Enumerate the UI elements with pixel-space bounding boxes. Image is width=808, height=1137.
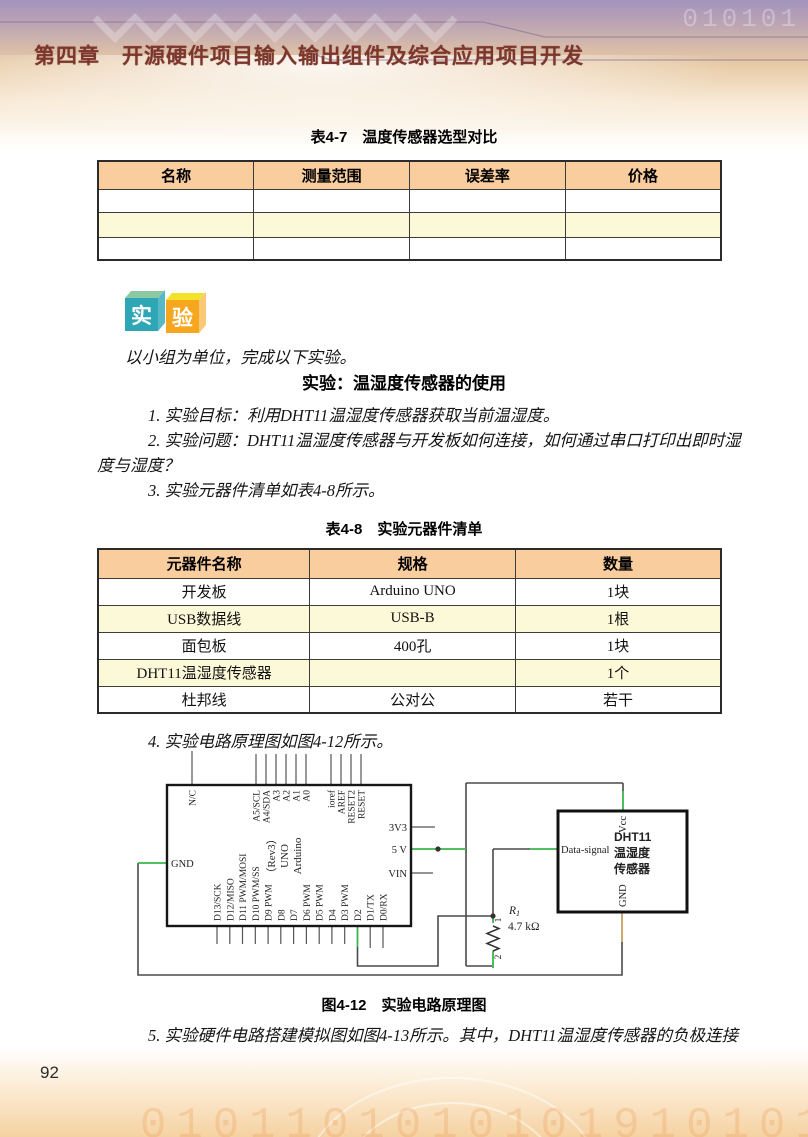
cube-side-face (158, 290, 165, 331)
dht11-gnd-label: GND (618, 884, 629, 907)
table-row: USB数据线 USB-B 1根 (98, 605, 721, 632)
cell (410, 212, 566, 237)
svg-text:A3: A3 (273, 790, 283, 802)
resistor-pin2-label: 2 (494, 954, 504, 959)
junction-dot (435, 846, 440, 851)
resistor-symbol (487, 926, 499, 951)
svg-text:A1: A1 (293, 790, 303, 802)
col-header: 数量 (515, 549, 721, 578)
page-number: 92 (40, 1063, 59, 1083)
svg-text:3V3: 3V3 (389, 823, 407, 834)
circuit-schematic: 1 2 R1 4.7 kΩ N/C A5/SCL A4/SDA A3 A2 A1… (120, 745, 720, 995)
chapter-header: 第四章 开源硬件项目输入输出组件及综合应用项目开发 (34, 40, 584, 70)
cell (565, 189, 721, 212)
table-4-7: 名称 测量范围 误差率 价格 (97, 160, 722, 261)
cell: 若干 (515, 686, 721, 713)
cell (254, 189, 410, 212)
col-header: 规格 (310, 549, 516, 578)
badge-char: 实 (125, 298, 158, 331)
cube-side-face (199, 292, 206, 333)
cell: USB-B (310, 605, 516, 632)
cell: 开发板 (98, 578, 310, 605)
cell: USB数据线 (98, 605, 310, 632)
badge-cube-shi: 实 (125, 298, 158, 331)
experiment-badge: 实 验 (125, 291, 225, 337)
svg-text:VIN: VIN (388, 869, 407, 880)
binary-decor-bottom: 0101101010101910101010 (140, 1101, 808, 1137)
svg-text:（Rev3）: （Rev3） (265, 833, 278, 878)
arduino-top-pin-stubs (192, 751, 361, 785)
cell: DHT11温湿度传感器 (98, 659, 310, 686)
experiment-step-5: 5. 实验硬件电路搭建模拟图如图4-13所示。其中，DHT11温湿度传感器的负极… (148, 1022, 738, 1046)
svg-text:D13/SCK: D13/SCK (214, 883, 224, 921)
table-row: 元器件名称 规格 数量 (98, 549, 721, 578)
badge-cube-yan: 验 (166, 300, 199, 333)
svg-text:温湿度: 温湿度 (614, 845, 651, 860)
arduino-gnd-label: GND (171, 859, 194, 870)
cell: 1根 (515, 605, 721, 632)
experiment-step-1: 1. 实验目标：利用DHT11温湿度传感器获取当前温湿度。 (148, 402, 559, 426)
resistor-value: 4.7 kΩ (508, 921, 540, 933)
table-row (98, 212, 721, 237)
svg-text:D6 PWM: D6 PWM (303, 884, 313, 921)
col-header: 价格 (565, 161, 721, 189)
svg-text:A4/SDA: A4/SDA (263, 790, 273, 823)
table-row: 杜邦线 公对公 若干 (98, 686, 721, 713)
cell: 面包板 (98, 632, 310, 659)
svg-text:RESET2: RESET2 (348, 790, 358, 824)
svg-text:D10 PWM/SS: D10 PWM/SS (252, 866, 262, 921)
svg-text:5 V: 5 V (392, 845, 408, 856)
cell: 杜邦线 (98, 686, 310, 713)
table-4-7-caption: 表4-7 温度传感器选型对比 (0, 126, 808, 147)
table-row: 名称 测量范围 误差率 价格 (98, 161, 721, 189)
svg-text:D4: D4 (328, 909, 338, 921)
svg-text:传感器: 传感器 (613, 861, 651, 876)
svg-text:D3 PWM: D3 PWM (341, 884, 351, 921)
svg-text:RESET: RESET (358, 790, 368, 819)
bottom-banner: 0101101010101910101010 (0, 1047, 808, 1137)
svg-text:A0: A0 (303, 790, 313, 802)
svg-text:A2: A2 (283, 790, 293, 802)
experiment-step-2: 2. 实验问题：DHT11温湿度传感器与开发板如何连接，如何通过串口打印出即时湿 (148, 427, 741, 451)
svg-text:D1/TX: D1/TX (367, 894, 377, 921)
svg-text:DHT11: DHT11 (614, 830, 652, 844)
cell: 1块 (515, 578, 721, 605)
resistor-pin1-label: 1 (494, 917, 504, 922)
badge-char: 验 (166, 300, 199, 333)
cell (98, 189, 254, 212)
experiment-step-2-cont: 度与湿度？ (97, 452, 180, 476)
svg-text:D7: D7 (290, 909, 300, 921)
svg-text:D11 PWM/MOSI: D11 PWM/MOSI (239, 854, 249, 921)
cell (98, 237, 254, 260)
col-header: 元器件名称 (98, 549, 310, 578)
cell (410, 189, 566, 212)
dht11-data-label: Data-signal (561, 845, 609, 856)
svg-text:Arduino: Arduino (292, 837, 304, 874)
cell (310, 659, 516, 686)
cell: 400孔 (310, 632, 516, 659)
cell (410, 237, 566, 260)
figure-caption: 图4-12 实验电路原理图 (0, 994, 808, 1015)
arduino-right-pin-labels: 3V3 5 V VIN (388, 823, 407, 880)
svg-text:A5/SCL: A5/SCL (253, 790, 263, 822)
col-header: 误差率 (410, 161, 566, 189)
cell: 1个 (515, 659, 721, 686)
resistor-name: R1 (508, 905, 520, 918)
cell: Arduino UNO (310, 578, 516, 605)
table-4-8-caption: 表4-8 实验元器件清单 (0, 518, 808, 539)
table-row: 面包板 400孔 1块 (98, 632, 721, 659)
intro-text: 以小组为单位，完成以下实验。 (125, 344, 356, 368)
cell: 1块 (515, 632, 721, 659)
table-row: DHT11温湿度传感器 1个 (98, 659, 721, 686)
svg-text:D5 PWM: D5 PWM (316, 884, 326, 921)
experiment-title: 实验：温湿度传感器的使用 (0, 369, 808, 394)
col-header: 名称 (98, 161, 254, 189)
cell (565, 237, 721, 260)
svg-text:AREF: AREF (338, 790, 348, 814)
cell (254, 237, 410, 260)
table-4-8: 元器件名称 规格 数量 开发板 Arduino UNO 1块 USB数据线 US… (97, 548, 722, 714)
table-row (98, 189, 721, 212)
experiment-step-3: 3. 实验元器件清单如表4-8所示。 (148, 477, 385, 501)
cell: 公对公 (310, 686, 516, 713)
svg-text:N/C: N/C (189, 790, 199, 806)
svg-text:D8: D8 (277, 909, 287, 921)
svg-text:D9 PWM: D9 PWM (265, 884, 275, 921)
dht11-name-label: DHT11 温湿度 传感器 (613, 830, 652, 876)
svg-text:UNO: UNO (279, 844, 291, 868)
arduino-right-pin-stubs (411, 827, 435, 873)
table-row (98, 237, 721, 260)
cell (254, 212, 410, 237)
col-header: 测量范围 (254, 161, 410, 189)
svg-text:D2: D2 (354, 909, 364, 921)
textbook-page: 010101 第四章 开源硬件项目输入输出组件及综合应用项目开发 表4-7 温度… (0, 0, 808, 1137)
svg-text:D12/MISO: D12/MISO (226, 878, 236, 921)
table-row: 开发板 Arduino UNO 1块 (98, 578, 721, 605)
cell (565, 212, 721, 237)
svg-text:ioref: ioref (327, 789, 338, 808)
svg-text:D0/RX: D0/RX (380, 893, 390, 921)
cell (98, 212, 254, 237)
